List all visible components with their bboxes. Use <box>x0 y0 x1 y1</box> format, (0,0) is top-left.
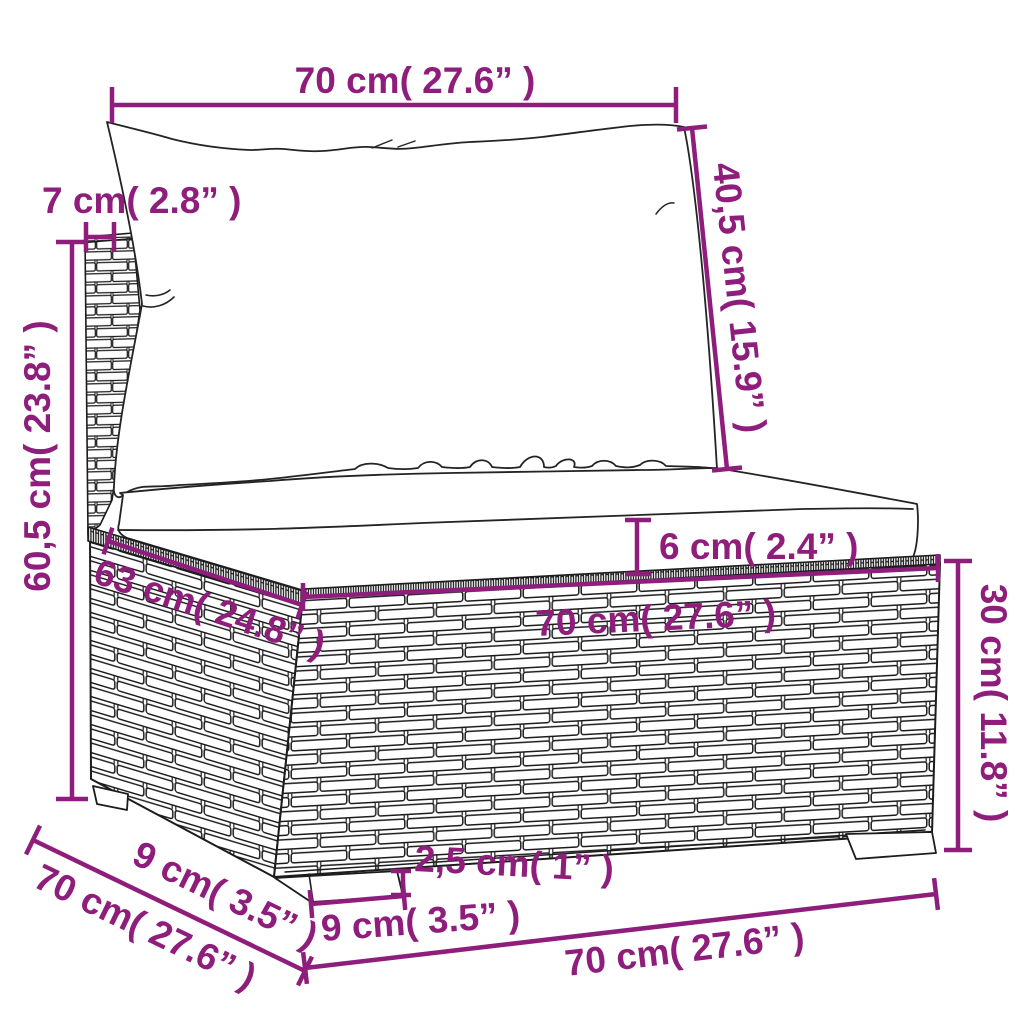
svg-text:30 cm( 11.8” ): 30 cm( 11.8” ) <box>973 584 1014 823</box>
svg-text:6 cm( 2.4” ): 6 cm( 2.4” ) <box>659 526 858 567</box>
svg-text:7 cm( 2.8” ): 7 cm( 2.8” ) <box>42 180 241 221</box>
svg-text:70 cm( 27.6” ): 70 cm( 27.6” ) <box>295 60 536 101</box>
svg-text:60,5 cm( 23.8” ): 60,5 cm( 23.8” ) <box>17 320 58 591</box>
